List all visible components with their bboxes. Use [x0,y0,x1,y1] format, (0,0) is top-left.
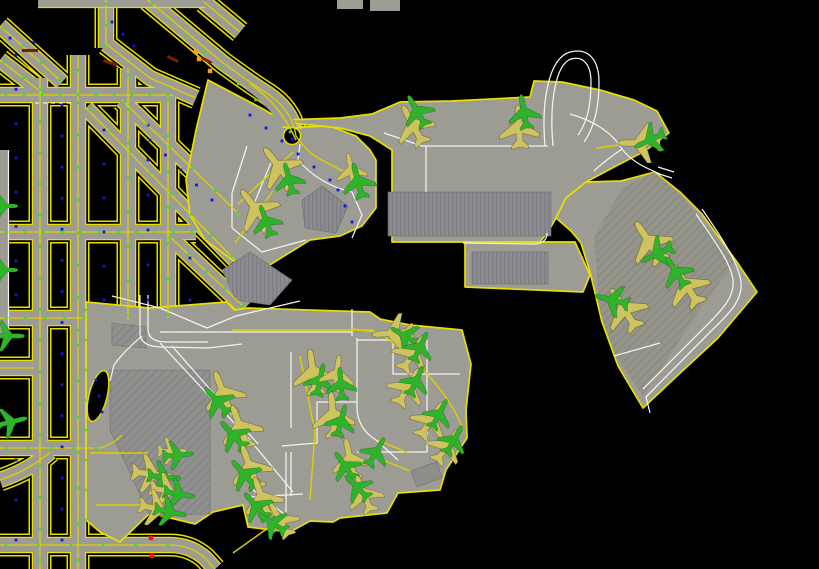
airfield-light [167,135,170,138]
airfield-light [77,415,80,418]
airfield-light [127,177,130,180]
airfield-light [15,122,18,125]
airfield-light [147,264,150,267]
airfield-light [39,527,42,530]
airfield-light [147,159,150,162]
airfield-light [167,206,170,209]
airfield-light [24,317,27,320]
airfield-light [147,229,150,232]
airfield-light [271,115,274,118]
airfield-light [205,270,208,273]
road-strip-top-tab1 [337,0,363,9]
airfield-light [27,447,30,450]
airfield-light [164,154,167,157]
airfield-light [103,265,106,268]
airfield-light [84,459,87,462]
airfield-light [223,287,226,290]
airfield-light [168,145,171,148]
airfield-light [84,369,87,372]
airfield-light [77,231,80,234]
airfield-light [61,259,64,262]
airfield-light [77,344,80,347]
airfield-light [95,379,98,382]
airfield-light [15,539,18,542]
airfield-light [77,101,80,104]
airfield-light [39,371,42,374]
airfield-light [61,445,64,448]
airfield-light [133,45,136,48]
airfield-light [220,67,223,70]
airfield-light [79,231,82,234]
airfield-light [237,212,240,215]
airfield-light [44,317,47,320]
airfield-light [189,257,192,260]
airfield-light [154,231,157,234]
airfield-light [167,314,170,317]
stand-strip-west-edge [0,150,8,335]
airfield-light [113,94,116,97]
airfield-light [39,245,42,248]
airfield-light [211,199,214,202]
airport-surface-map [0,0,819,569]
airfield-light [231,255,234,258]
airfield-light [281,140,284,143]
airfield-light [101,411,104,414]
airfield-light [127,245,130,248]
airfield-light [127,108,130,111]
red-marker-light [150,554,154,558]
airfield-light [103,299,106,302]
airfield-light [39,339,42,342]
airfield-light [127,142,130,145]
airfield-light [77,264,80,267]
airfield-light [77,69,80,72]
airfield-light [83,317,86,320]
airfield-light [84,519,87,522]
airfield-light [84,489,87,492]
airfield-light [15,294,18,297]
airfield-light [134,544,137,547]
building-south-annex [112,323,146,348]
airfield-light [147,299,150,302]
airfield-light [242,305,245,308]
airfield-light [180,169,183,172]
airfield-light [151,3,154,6]
airfield-light [39,402,42,405]
airfield-light [84,339,87,342]
airfield-light [116,231,119,234]
airfield-light [297,153,300,156]
airfield-light [84,399,87,402]
airfield-light [61,414,64,417]
stopbar-light [208,69,212,73]
airfield-light [149,139,152,142]
airfield-light [59,79,62,82]
airfield-light [95,94,98,97]
airfield-light [61,321,64,324]
airfield-light [105,24,108,27]
airfield-light [329,179,332,182]
airfield-light [23,94,26,97]
airfield-light [84,429,87,432]
airfield-light [105,3,108,6]
airfield-light [167,170,170,173]
airfield-light [15,54,18,57]
airfield-light [89,109,92,112]
airfield-light [77,559,80,562]
airfield-light [42,92,45,95]
airfield-light [39,465,42,468]
airfield-light [21,44,24,47]
airfield-light [59,94,62,97]
airfield-light [15,259,18,262]
airfield-light [131,94,134,97]
airfield-light [5,94,8,97]
airfield-light [185,35,188,38]
airfield-light [23,231,26,234]
airfield-light [40,61,43,64]
airfield-light [61,166,64,169]
airfield-light [70,544,73,547]
airfield-light [61,477,64,480]
airfield-light [190,213,193,216]
airfield-light [39,120,42,123]
airfield-light [15,459,18,462]
airfield-light [150,171,153,174]
airfield-light [254,99,257,102]
airfield-light [195,184,198,187]
airfield-light [61,352,64,355]
airfield-light [77,329,80,332]
airfield-light [84,309,87,312]
airfield-light [167,94,170,97]
airfield-light [39,277,42,280]
airfield-light [127,314,130,317]
airfield-light [39,433,42,436]
airfield-light [123,101,126,104]
airfield-light [191,167,194,170]
airfield-light [39,214,42,217]
airfield-light [103,129,106,132]
airfield-light [61,135,64,138]
airfield-light [135,231,138,234]
airfield-light [15,157,18,160]
airfield-light [214,190,217,193]
airfield-light [37,544,40,547]
airfield-light [61,197,64,200]
airfield-light [15,499,18,502]
airfield-light [77,380,80,383]
airfield-light [77,199,80,202]
airfield-light [122,33,125,36]
surface-map-canvas [0,0,819,569]
airfield-light [39,183,42,186]
airfield-light [189,299,192,302]
airfield-light [22,76,25,79]
airfield-light [147,194,150,197]
stopbar-light [194,50,198,54]
airfield-light [109,130,112,133]
airfield-light [95,447,98,450]
airfield-light [237,83,240,86]
airfield-light [63,317,66,320]
airfield-light [169,236,172,239]
airfield-light [103,197,106,200]
airfield-light [191,231,194,234]
airfield-light [187,253,190,256]
airfield-light [77,451,80,454]
airfield-light [5,317,8,320]
airfield-light [289,131,292,134]
airfield-light [172,231,175,234]
airfield-light [61,228,64,231]
airfield-light [61,231,64,234]
airfield-light [15,88,18,91]
airfield-light [5,544,8,547]
airfield-light [337,189,340,192]
road-strip-top [38,0,205,7]
airfield-light [167,544,170,547]
airfield-light [98,395,101,398]
airfield-light [103,163,106,166]
airfield-light [149,94,152,97]
airfield-light [5,447,8,450]
airfield-light [167,242,170,245]
airfield-light [77,94,80,97]
airfield-light [77,523,80,526]
airfield-light [98,231,101,234]
airfield-light [103,231,106,234]
airfield-light [170,192,173,195]
airfield-light [313,166,316,169]
airfield-light [129,150,132,153]
airfield-light [39,151,42,154]
building-north-annex [472,252,548,284]
airfield-light [3,61,6,64]
airfield-light [9,37,12,40]
airfield-light [61,539,64,542]
airfield-light [39,559,42,562]
airfield-light [3,27,6,30]
airfield-light [42,231,45,234]
airfield-light [77,296,80,299]
airfield-light [210,234,213,237]
airfield-light [105,45,108,48]
airfield-light [249,114,252,117]
airfield-light [61,104,64,107]
airfield-light [39,308,42,311]
airfield-light [127,211,130,214]
terminal-building-north [388,192,551,236]
red-marker-light [149,536,153,540]
airfield-light [5,231,8,234]
airfield-light [265,127,268,130]
airfield-light [61,508,64,511]
airfield-light [77,166,80,169]
airfield-light [61,383,64,386]
airfield-light [202,51,205,54]
stopbar-light [197,57,201,61]
airfield-light [167,278,170,281]
airfield-light [127,279,130,282]
airfield-light [77,487,80,490]
airfield-light [146,123,149,126]
airfield-light [167,99,170,102]
airfield-light [168,19,171,22]
airfield-light [351,221,354,224]
road-strip-top-tab2 [370,0,400,11]
airfield-light [61,290,64,293]
stopbar-marking [22,49,38,52]
airfield-light [111,21,114,24]
airfield-light [39,89,42,92]
airfield-light [72,447,75,450]
airfield-light [15,191,18,194]
airfield-light [15,225,18,228]
airfield-light [33,41,36,44]
airfield-light [291,138,294,141]
airfield-light [77,134,80,137]
airfield-light [50,447,53,450]
airfield-light [102,544,105,547]
airfield-light [344,205,347,208]
airfield-light [127,74,130,77]
airfield-light [39,496,42,499]
